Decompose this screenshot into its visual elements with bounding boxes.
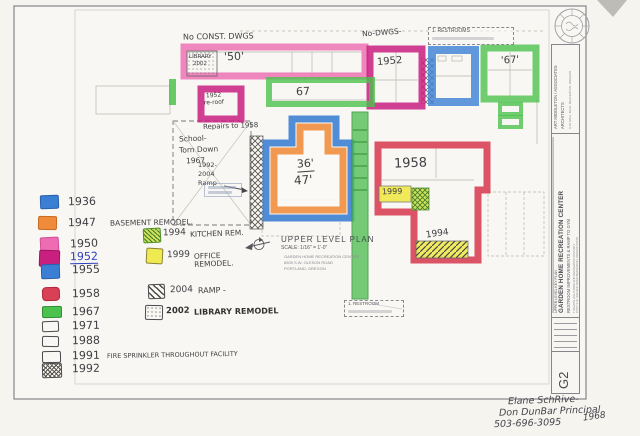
restrooms-callout-top: 1. RESTROOMS xyxy=(428,27,514,45)
dim-50-label: '50' xyxy=(224,51,244,63)
school-note-2: Torn Down xyxy=(179,145,219,154)
architect-title: ARCHITECTS xyxy=(561,49,565,129)
legend-year: 1971 xyxy=(72,320,100,332)
swatch-1988 xyxy=(42,336,59,347)
plan-scale: SCALE: 1/16" = 1'-0" xyxy=(281,246,327,252)
scanned-key-plan-sheet: No CONST. DWGS No-DWGS- 1. RESTROOMS LIB… xyxy=(0,0,640,436)
swatch-2002 xyxy=(145,305,163,320)
title-block: ART MIDDLETON / ASSOCIATES ARCHITECTS S.… xyxy=(551,44,580,394)
architect-address: S.W. MALL BLVD. BEAVERTON, OREGON xyxy=(569,49,572,129)
restrooms-callout-top-label: 1. RESTROOMS xyxy=(432,29,470,35)
swatch-1991 xyxy=(42,351,61,363)
swatch-2004 xyxy=(148,284,166,300)
school-note-1: School- xyxy=(179,135,207,144)
swatch-1999 xyxy=(146,248,164,265)
restroom-callout-bottom: 1. RESTROOM xyxy=(344,300,404,317)
swatch-1947 xyxy=(38,216,57,230)
legend-year: 1958 xyxy=(72,288,100,300)
green-corridor-strip xyxy=(352,112,368,299)
swatch-1971 xyxy=(42,321,59,333)
legend-year: 2004 xyxy=(170,286,193,296)
titleblock-divider xyxy=(552,133,579,134)
legend-year: 1950 xyxy=(70,238,98,251)
legend-year: 1991 xyxy=(72,350,100,362)
legend-year: 1936 xyxy=(68,196,96,208)
page-corner-fold xyxy=(597,0,627,17)
legend-note: RAMP - xyxy=(198,287,226,296)
kitchen-1994-area xyxy=(412,188,429,210)
legend-year: 1967 xyxy=(72,306,100,318)
plan-address-2: 6505 S.W. OLESON ROAD xyxy=(284,261,333,265)
owner-line-2: 15707 S.W. WALKER ROAD BEAVERTON, OREGON… xyxy=(576,137,579,313)
plan-address-3: PORTLAND, OREGON xyxy=(284,267,326,271)
ramp-note-1: 1992- xyxy=(198,162,217,169)
legend-year: 1955 xyxy=(72,264,100,276)
titleblock-divider xyxy=(552,317,579,318)
library-label-1: LIBRARY xyxy=(189,55,212,61)
swatch-1955 xyxy=(41,264,61,280)
architect-name: ART MIDDLETON / ASSOCIATES xyxy=(554,49,558,129)
library-label-2: 2002 xyxy=(193,62,207,68)
legend-year: 1988 xyxy=(72,335,100,347)
swatch-1936 xyxy=(40,195,59,210)
date-stamp xyxy=(204,183,242,197)
legend-note: LIBRARY REMODEL xyxy=(194,307,279,317)
legend-year: 1992 xyxy=(72,363,100,375)
label-1952-top: 1952 xyxy=(377,56,403,69)
illegible-text-smudge xyxy=(432,37,494,40)
gym-dim-47: 47' xyxy=(294,173,313,187)
label-1958: 1958 xyxy=(394,156,428,171)
reroof-label-2: re-roof xyxy=(204,99,224,106)
plan-title: UPPER LEVEL PLAN xyxy=(281,236,375,245)
project-name: GARDEN HOME RECREATION CENTER xyxy=(559,137,565,313)
illegible-text-smudge xyxy=(348,310,392,313)
swatch-1992 xyxy=(42,363,63,379)
gym-dim-36: 36' xyxy=(297,157,315,172)
swatch-1994 xyxy=(143,228,162,244)
swatch-1967 xyxy=(42,306,62,318)
legend-year-1952-ink: 1952 xyxy=(70,251,98,264)
plan-address-1: GARDEN HOME RECREATION CENTER xyxy=(284,255,359,259)
legend-year: 1947 xyxy=(68,217,96,229)
legend-note: OFFICE REMODEL. xyxy=(194,251,243,268)
label-67-band: 67 xyxy=(296,86,310,98)
legend-note: BASEMENT REMODEL. xyxy=(110,218,193,227)
swatch-1958 xyxy=(42,287,60,302)
ramp-note-2: 2004 xyxy=(198,171,215,178)
legend-year: 1999 xyxy=(167,251,190,261)
legend-year: 2002 xyxy=(166,307,190,316)
titleblock-divider xyxy=(552,351,579,352)
label-67-top: '67' xyxy=(501,56,520,67)
note-no-const-dwgs: No CONST. DWGS xyxy=(183,32,254,42)
legend-year: 1994 xyxy=(163,229,186,239)
ramp-hatch-strip xyxy=(250,136,263,229)
restroom-callout-bottom-label: 1. RESTROOM xyxy=(348,302,379,307)
strip-1994-area xyxy=(416,241,468,258)
project-scope: RESTROOM IMPROVEMENTS & RAMP TO GYM xyxy=(567,137,571,313)
green-tick-1967 xyxy=(169,79,176,105)
label-1999: 1999 xyxy=(382,188,403,197)
sheet-number: G2 xyxy=(557,357,570,389)
